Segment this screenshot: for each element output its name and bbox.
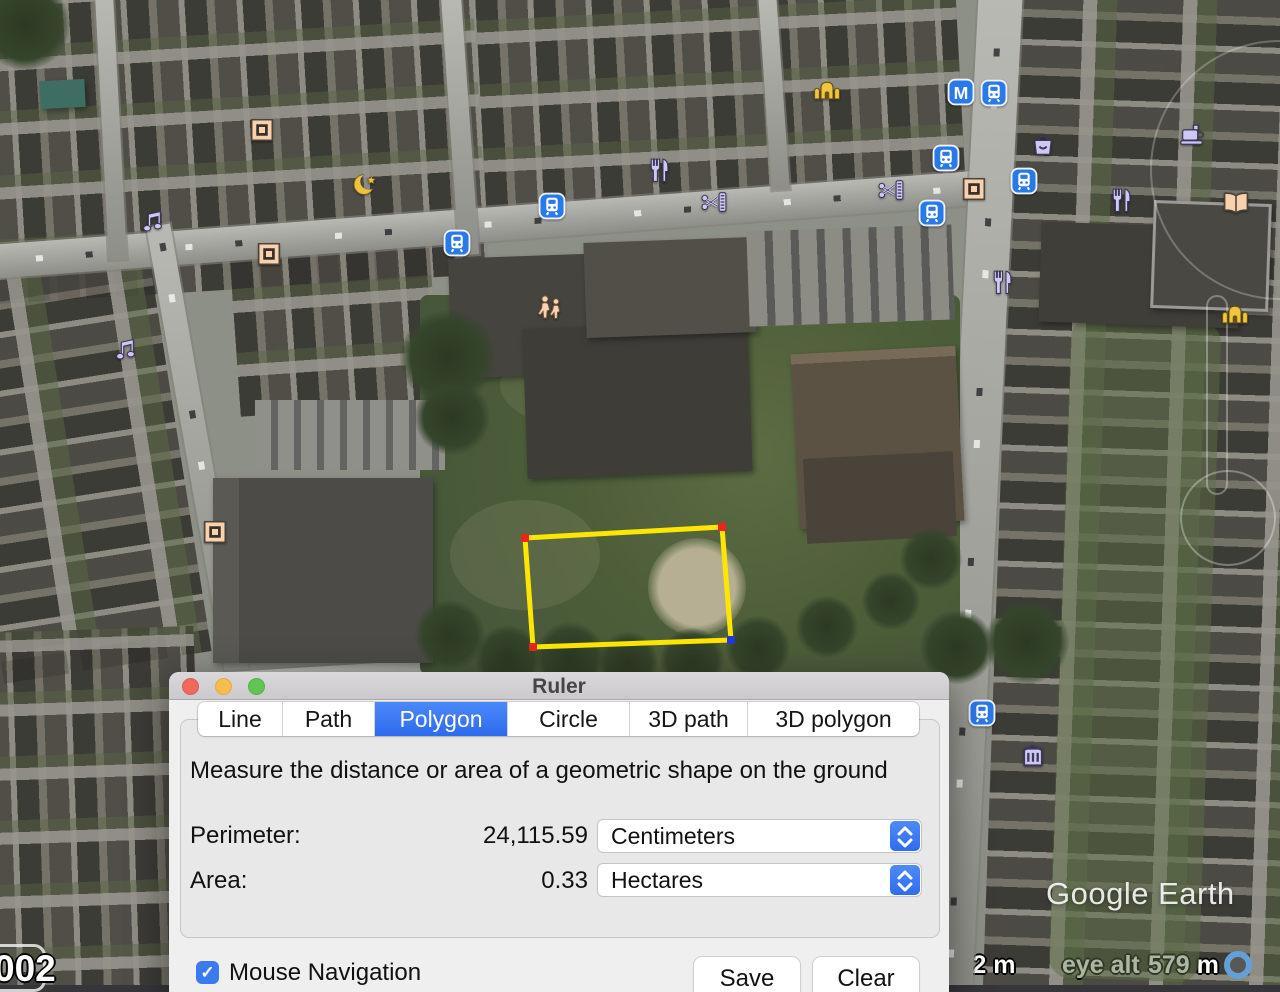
streaming-progress-icon: [1224, 951, 1252, 979]
perimeter-label: Perimeter:: [190, 822, 301, 850]
transit-icon[interactable]: [919, 200, 946, 227]
worship-icon[interactable]: [812, 75, 843, 101]
barber-icon[interactable]: [877, 178, 907, 203]
save-button[interactable]: Save: [693, 956, 801, 992]
area-value: 0.33: [431, 867, 588, 895]
museum-icon[interactable]: [1020, 743, 1047, 770]
imagery-date-label: 002: [0, 948, 56, 990]
historic-square-icon[interactable]: [204, 521, 227, 544]
tab-path[interactable]: Path: [283, 702, 375, 736]
mouse-navigation-label: Mouse Navigation: [229, 959, 421, 987]
music-note-icon[interactable]: [141, 209, 164, 236]
crescent-icon[interactable]: [352, 171, 379, 198]
polygon-vertex[interactable]: [521, 534, 529, 542]
dialog-description: Measure the distance or area of a geomet…: [190, 757, 930, 785]
perimeter-unit-value: Centimeters: [611, 823, 735, 850]
music-note-icon[interactable]: [114, 337, 137, 364]
dialog-title: Ruler: [169, 675, 949, 699]
coffee-icon[interactable]: [1179, 123, 1208, 148]
perimeter-value: 24,115.59: [431, 822, 588, 850]
stepper-icon[interactable]: [890, 821, 920, 851]
restaurant-icon[interactable]: [989, 269, 1014, 296]
historic-square-icon[interactable]: [251, 119, 274, 142]
restaurant-icon[interactable]: [1108, 187, 1133, 214]
ruler-dialog: Ruler LinePathPolygonCircle3D path3D pol…: [169, 672, 949, 992]
transit-icon[interactable]: [444, 230, 471, 257]
tab-polygon[interactable]: Polygon: [375, 702, 508, 736]
transit-icon[interactable]: [969, 700, 996, 727]
perimeter-unit-select[interactable]: Centimeters: [597, 819, 922, 853]
transit-icon[interactable]: [539, 193, 566, 220]
historic-square-icon[interactable]: [963, 178, 986, 201]
mouse-navigation-checkbox[interactable]: ✓: [196, 961, 219, 984]
metro-icon[interactable]: M: [948, 79, 975, 106]
worship-icon[interactable]: [1220, 299, 1251, 325]
polygon-vertex[interactable]: [529, 643, 537, 651]
stepper-icon[interactable]: [890, 865, 920, 895]
tab-3d-path[interactable]: 3D path: [630, 702, 748, 736]
tab-circle[interactable]: Circle: [508, 702, 630, 736]
area-unit-select[interactable]: Hectares: [597, 863, 922, 897]
dialog-titlebar[interactable]: Ruler: [169, 672, 949, 700]
clear-button[interactable]: Clear: [812, 956, 920, 992]
area-label: Area:: [190, 867, 247, 895]
svg-text:M: M: [954, 83, 969, 103]
polygon-vertex[interactable]: [718, 523, 726, 531]
people-icon[interactable]: [536, 294, 565, 321]
historic-square-icon[interactable]: [258, 243, 281, 266]
tab-line[interactable]: Line: [198, 702, 283, 736]
transit-icon[interactable]: [933, 145, 960, 172]
book-icon[interactable]: [1221, 191, 1252, 216]
restaurant-icon[interactable]: [646, 157, 671, 184]
ruler-tab-bar: LinePathPolygonCircle3D path3D polygon: [198, 702, 919, 736]
google-earth-watermark: Google Earth: [1046, 876, 1235, 912]
area-unit-value: Hectares: [611, 867, 703, 894]
google-earth-viewport[interactable]: M Google Earth 112 m eye alt 579 m 002 R…: [0, 0, 1280, 992]
transit-icon[interactable]: [1011, 168, 1038, 195]
barber-icon[interactable]: [700, 190, 730, 215]
shopping-bag-icon[interactable]: [1030, 132, 1057, 159]
polygon-vertex[interactable]: [727, 636, 735, 644]
transit-icon[interactable]: [981, 80, 1008, 107]
tab-3d-polygon[interactable]: 3D polygon: [748, 702, 919, 736]
